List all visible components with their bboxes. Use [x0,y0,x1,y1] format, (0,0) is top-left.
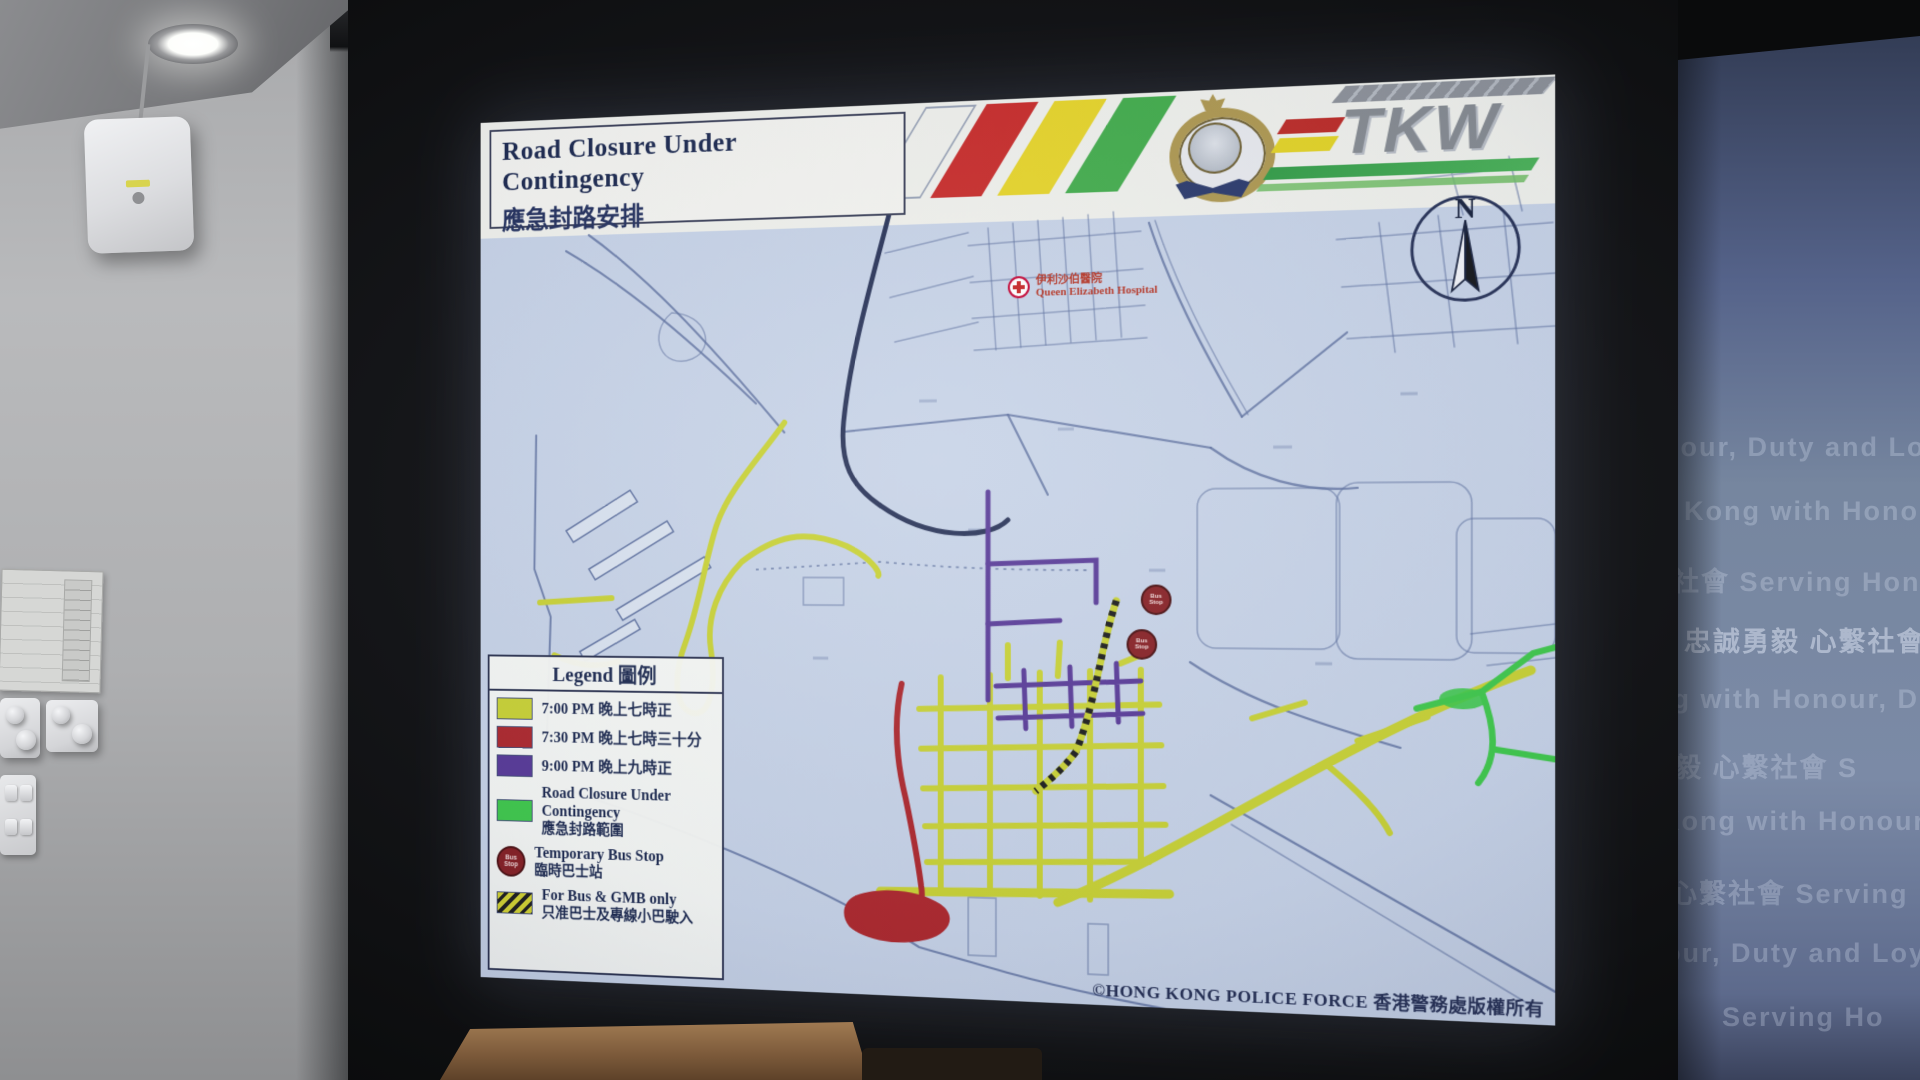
police-badge-icon [1161,92,1265,202]
light-switch [20,819,32,835]
hospital-cross-icon [1008,276,1030,299]
dimmer-knob [16,730,36,750]
expressway [843,179,1008,533]
wall-corner-shadow [296,0,348,1080]
legend-swatch [497,754,533,777]
light-switch [5,785,17,801]
route-9pm-purple [988,491,1143,731]
temporary-bus-stop-marker: Bus Stop [1127,629,1158,660]
motto-wall-shadow [1678,0,1920,1080]
legend-box: Legend 圖例 7:00 PM 晚上七時正 7:30 PM 晚上七時三十分 … [488,654,724,980]
ap-brand-label [126,180,150,188]
ap-logo-mark [132,192,144,204]
legend-item: 7:00 PM 晚上七時正 [497,697,715,723]
legend-label-line2: 臨時巴士站 [534,862,664,884]
dimmer-panel-2 [46,700,98,752]
tkw-logo: TKW [1275,77,1544,196]
wooden-desk [440,1022,870,1080]
light-switch-plate [0,775,36,855]
map-slide: Road Closure Under Contingency 應急封路安排 [481,74,1556,1025]
bus-gmb-road [1036,600,1117,793]
legend-swatch [497,891,533,914]
legend-item: For Bus & GMB only 只准巴士及專線小巴駛入 [497,885,715,929]
legend-swatch [497,726,533,749]
ceiling-downlight [148,24,238,64]
conference-room-scene: Road Closure Under Contingency 應急封路安排 [0,0,1920,1080]
legend-swatch: Bus Stop [497,845,526,876]
dimmer-knob [52,706,70,724]
hospital-label: 伊利沙伯醫院 Queen Elizabeth Hospital [1036,271,1158,298]
north-compass: N [1405,185,1527,306]
dimmer-panel-1 [0,698,40,758]
north-arrow-icon: N [1405,185,1527,306]
light-switch [5,819,17,835]
legend-item: 9:00 PM 晚上九時正 [497,754,715,781]
wall-notice-grid [62,579,93,682]
map-title-en: Road Closure Under Contingency [502,120,892,198]
dimmer-knob [72,724,92,744]
dimmer-knob [6,706,24,724]
legend-label-line2: 應急封路範圍 [542,820,715,842]
hospital-marker: 伊利沙伯醫院 Queen Elizabeth Hospital [1008,271,1158,299]
legend-swatch [497,697,533,720]
legend-label-line1: Road Closure Under Contingency [542,784,715,825]
route-730pm-red [844,683,950,944]
legend-title: Legend 圖例 [490,656,723,694]
legend-label-line1: 7:00 PM 晚上七時正 [542,700,672,720]
legend-item: Bus Stop Temporary Bus Stop 臨時巴士站 [497,843,715,886]
legend-item: 7:30 PM 晚上七時三十分 [497,726,715,752]
decorative-stripes [898,95,1188,199]
light-switch [20,785,32,801]
desk-equipment [862,1048,1042,1080]
legend-label-line1: 9:00 PM 晚上九時正 [542,757,672,778]
map-title-box: Road Closure Under Contingency 應急封路安排 [490,112,906,229]
tkw-logo-text: TKW [1341,94,1500,165]
legend-swatch [497,799,533,822]
motto-wall: nour, Duty and Loyal g Kong with Honour,… [1678,0,1920,1080]
svg-text:N: N [1455,193,1476,225]
projection-screen: Road Closure Under Contingency 應急封路安排 [481,74,1556,1025]
temporary-bus-stop-marker: Bus Stop [1141,585,1172,616]
legend-item: Road Closure Under Contingency 應急封路範圍 [497,783,715,843]
wall-notice-sheet [0,569,104,694]
wifi-access-point [84,116,195,254]
legend-label-line1: 7:30 PM 晚上七時三十分 [542,729,702,750]
tkw-yellow-bar [1271,136,1339,153]
route-contingency-green [1417,646,1556,785]
tkw-red-bar [1277,117,1345,134]
legend-items: 7:00 PM 晚上七時正 7:30 PM 晚上七時三十分 9:00 PM 晚上… [490,691,723,936]
